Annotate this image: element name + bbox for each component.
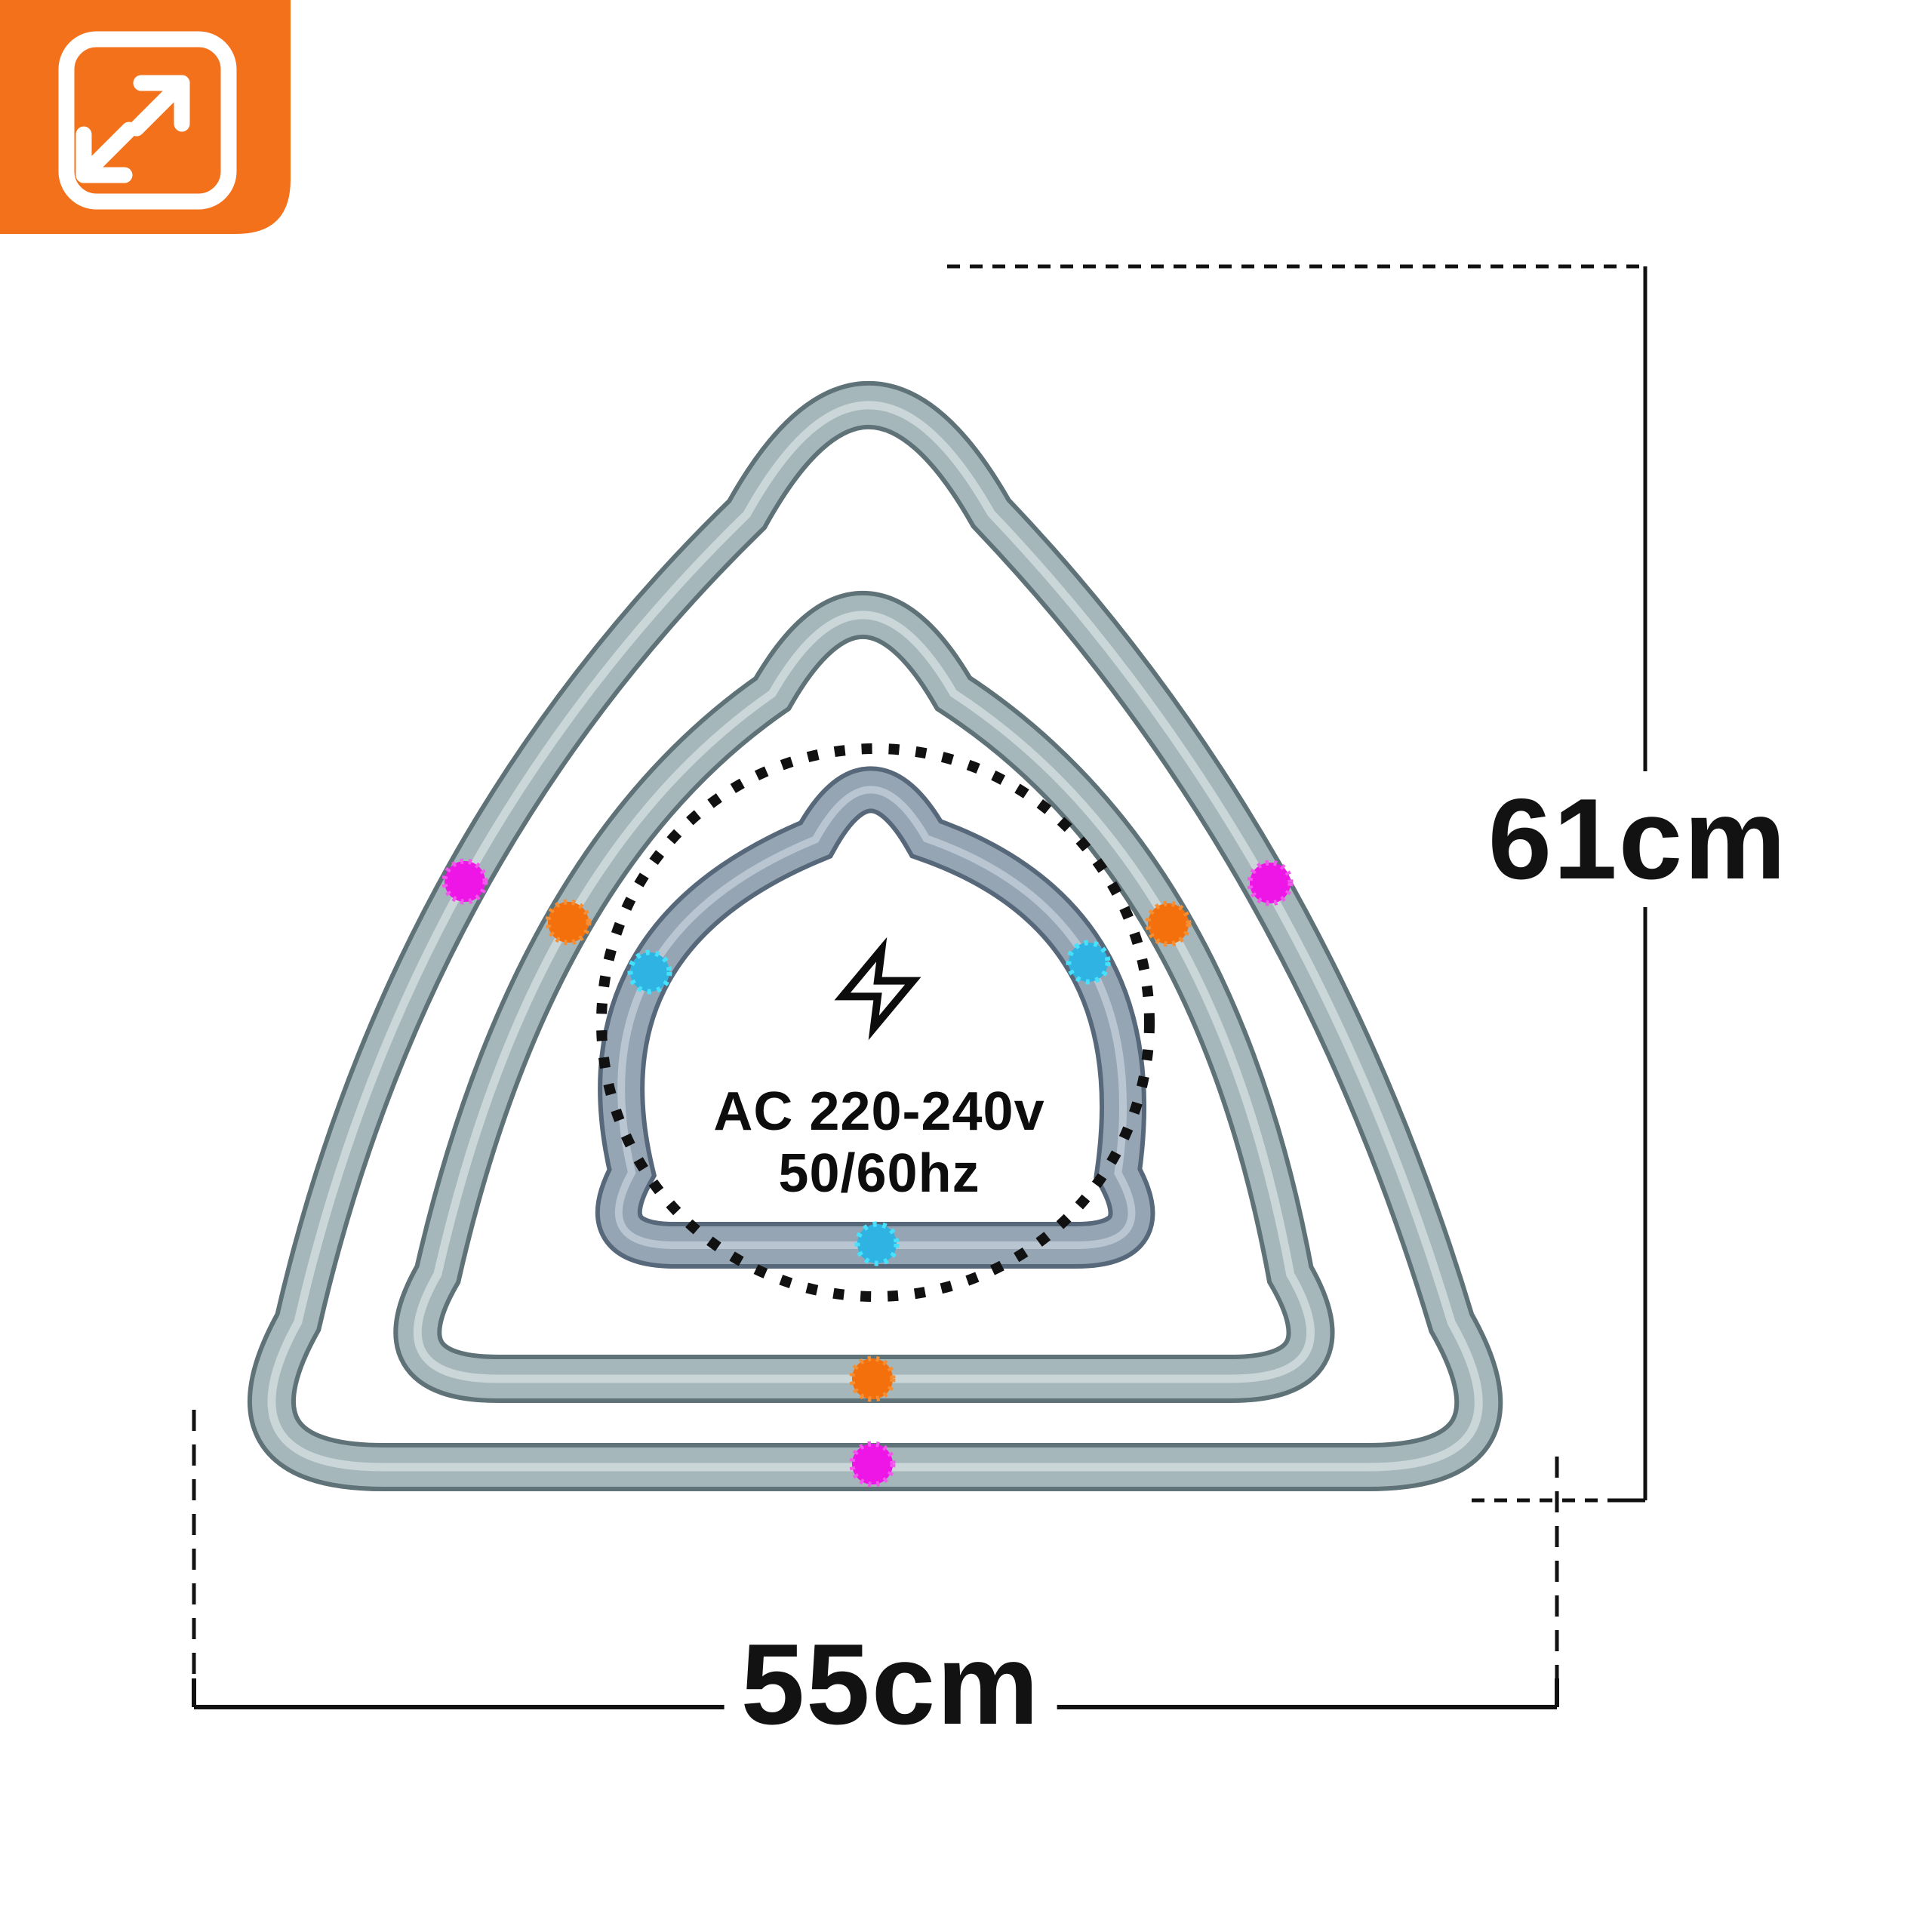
marker-dot-orange-bottom xyxy=(852,1358,893,1399)
marker-dot-magenta-left xyxy=(445,861,485,902)
marker-dot-cyan-right xyxy=(1069,943,1108,982)
lightning-bolt-icon xyxy=(842,949,913,1028)
height-dimension-label: 61cm xyxy=(1472,771,1804,907)
width-dimension-label: 55cm xyxy=(724,1617,1057,1752)
product-dimension-diagram: AC 220-240v 50/60hz 61cm 55cm xyxy=(0,0,1932,1932)
marker-dot-orange-left xyxy=(548,902,589,943)
power-spec-line2: 50/60hz xyxy=(615,1143,1143,1204)
marker-dot-cyan-left xyxy=(630,952,669,992)
marker-dot-cyan-bottom xyxy=(857,1224,897,1263)
power-spec-label: AC 220-240v 50/60hz xyxy=(615,1081,1143,1204)
marker-dot-magenta-right xyxy=(1250,863,1291,903)
marker-dot-orange-right xyxy=(1148,903,1189,944)
power-spec-line1: AC 220-240v xyxy=(615,1081,1143,1143)
marker-dot-magenta-bottom xyxy=(852,1444,893,1484)
expand-badge xyxy=(0,0,291,234)
